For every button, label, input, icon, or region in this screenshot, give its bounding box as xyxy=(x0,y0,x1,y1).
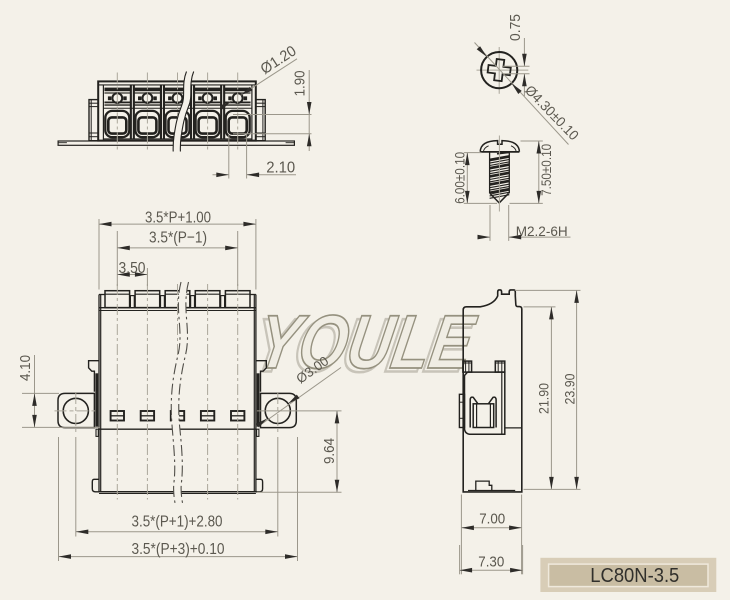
svg-text:M2.2-6H: M2.2-6H xyxy=(516,223,568,239)
svg-text:21.90: 21.90 xyxy=(536,383,552,414)
svg-text:3.5*(P−1): 3.5*(P−1) xyxy=(149,230,207,247)
svg-text:6.00±0.10: 6.00±0.10 xyxy=(451,152,467,204)
svg-text:2.10: 2.10 xyxy=(266,160,295,177)
svg-text:YOULE: YOULE xyxy=(251,301,481,385)
svg-text:LC80N-3.5: LC80N-3.5 xyxy=(590,565,679,587)
svg-text:9.64: 9.64 xyxy=(321,438,338,464)
svg-text:7.30: 7.30 xyxy=(478,554,504,571)
svg-text:7.50±0.10: 7.50±0.10 xyxy=(538,144,554,196)
svg-text:1.90: 1.90 xyxy=(292,70,309,96)
svg-text:3.5*P+1.00: 3.5*P+1.00 xyxy=(145,209,211,226)
svg-text:3.5*(P+1)+2.80: 3.5*(P+1)+2.80 xyxy=(132,513,223,530)
svg-text:7.00: 7.00 xyxy=(479,510,505,527)
svg-text:4.10: 4.10 xyxy=(17,355,34,381)
svg-text:23.90: 23.90 xyxy=(562,373,578,404)
svg-text:3.50: 3.50 xyxy=(119,260,146,277)
svg-text:3.5*(P+3)+0.10: 3.5*(P+3)+0.10 xyxy=(132,541,225,558)
svg-text:0.75: 0.75 xyxy=(507,14,524,41)
